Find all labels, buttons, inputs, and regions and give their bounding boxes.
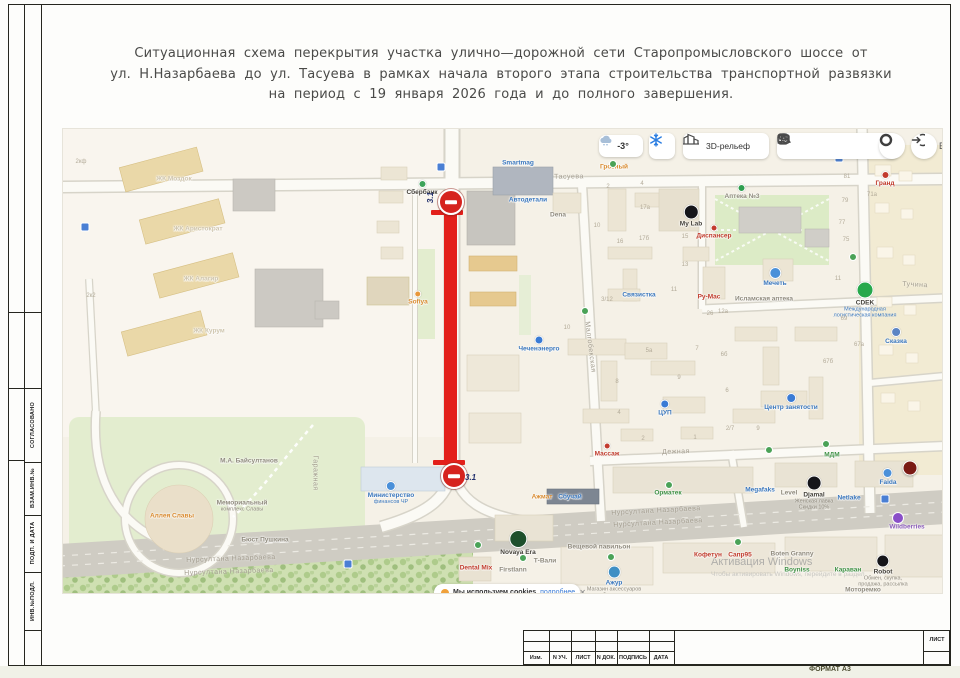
map-poi-label[interactable]: Чеченэнерго [518, 336, 559, 353]
map-poi-label[interactable]: Novaya Era [500, 530, 535, 556]
transit-stop-icon [81, 223, 90, 232]
poi-category-icon [608, 566, 621, 579]
house-number-label: 11 [671, 287, 677, 293]
brand-circle-icon [903, 461, 918, 476]
map-poi-label[interactable]: Sofiya [408, 291, 428, 306]
map-poi-label[interactable]: ЖК Курум [193, 328, 224, 335]
map-poi-label[interactable]: Автодетали [509, 197, 547, 204]
title-block-line [674, 631, 675, 666]
poi-category-icon [414, 291, 421, 298]
closed-road-segment [444, 214, 457, 462]
relief-label: 3D-рельеф [706, 141, 750, 151]
stamp-inv-podl: ИНВ.№ПОДЛ. [30, 581, 36, 621]
stamp-divider [24, 572, 41, 573]
nature-poi-icon [609, 160, 617, 168]
poi-category-icon [418, 180, 426, 188]
map-poi-label[interactable]: Мемориальныйкомплекс Славы [217, 500, 268, 513]
street-name-label: Нурсултана Назарбаева [184, 567, 274, 577]
poi-category-icon [661, 400, 670, 409]
stamp-divider [8, 388, 41, 389]
street-name-label: Дежная [662, 448, 690, 456]
title-block-line [571, 631, 572, 666]
map-poi-label[interactable]: Smartmag [502, 160, 534, 167]
title-block-line [923, 631, 924, 666]
title-block-column-label: N УЧ. [553, 655, 567, 661]
house-number-label: 6 [725, 388, 728, 394]
map-poi-label[interactable]: Массаж [595, 443, 620, 458]
stamp-divider [24, 462, 41, 463]
map-poi-label[interactable]: Ру-Мас [698, 294, 721, 301]
map-poi-label[interactable]: Центр занятости [764, 393, 818, 411]
house-number-label: 2кф [76, 159, 87, 165]
house-number-label: 75 [843, 237, 850, 243]
map-poi-label[interactable]: Netlake [837, 495, 860, 502]
house-number-label: 81 [844, 174, 851, 180]
nature-poi-icon [665, 481, 673, 489]
title-block-column-label: ЛИСТ [575, 655, 590, 661]
drawing-sheet: СОГЛАСОВАНО ВЗАМ.ИНВ.№ ПОДП. И ДАТА ИНВ.… [0, 0, 960, 678]
house-number-label: 9 [756, 426, 759, 432]
title-block-column-label: Изм. [530, 655, 542, 661]
map-poi-label[interactable]: ЖК Алагир [184, 276, 219, 283]
map-labels-layer: СбербанкSmartmagГрозныйАвтодеталиDenaMy … [63, 129, 942, 593]
frame-line [950, 4, 951, 666]
poi-category-icon [684, 205, 699, 220]
poi-category-icon [509, 530, 527, 548]
nature-poi-icon [822, 440, 830, 448]
house-number-label: 17б [639, 236, 649, 242]
house-number-label: 11 [835, 276, 841, 282]
street-name-label: Тасуева [554, 173, 584, 181]
poi-category-icon [881, 171, 889, 179]
frame-line [41, 4, 42, 666]
house-number-label: 17а [640, 205, 650, 211]
transit-stop-icon [437, 163, 446, 172]
house-number-label: 77 [839, 220, 846, 226]
wildberries-icon [892, 512, 904, 524]
nature-poi-icon [734, 538, 742, 546]
house-number-label: 5а [646, 348, 653, 354]
map-poi-label[interactable]: Орматек [654, 490, 681, 497]
house-number-label: 10 [594, 223, 601, 229]
frame-line [24, 4, 25, 666]
map-poi-label[interactable]: АжурМагазин аксессуарови бижутерии [587, 566, 641, 595]
map-poi-label[interactable]: Мечеть [763, 267, 786, 287]
house-number-label: 69 [841, 316, 848, 322]
house-number-label: 2к2 [86, 293, 95, 299]
stamp-soglasovano: СОГЛАСОВАНО [30, 402, 36, 448]
poi-category-icon [883, 468, 893, 478]
map-poi-label[interactable]: Ажмат [532, 494, 553, 501]
map-poi-label[interactable]: Boten Granny [771, 551, 814, 558]
map-poi-label[interactable]: Megafaks [745, 487, 775, 494]
stamp-divider [8, 312, 41, 313]
poi-category-icon [738, 184, 746, 192]
frame-line [8, 4, 9, 666]
stamp-vzam-inv: ВЗАМ.ИНВ.№ [30, 468, 36, 508]
poi-category-icon [877, 555, 890, 568]
house-number-label: 9 [677, 375, 680, 381]
house-number-label: 1 [693, 435, 696, 441]
stamp-podp-data: ПОДП. И ДАТА [30, 522, 36, 565]
transit-stop-icon [344, 560, 353, 569]
title-block-line [524, 651, 674, 652]
title-block-line [617, 631, 618, 666]
house-number-label: 2 [641, 436, 644, 442]
map-poi-label[interactable]: Dena [550, 212, 566, 219]
map-screenshot[interactable]: СбербанкSmartmagГрозныйАвтодеталиDenaMy … [62, 128, 943, 594]
map-poi-label[interactable]: ЖК Моздок [156, 176, 192, 183]
cookie-icon [441, 589, 449, 595]
title-block-column-label: ПОДПИСЬ [619, 655, 647, 661]
cookie-banner: Мы используем cookies подробнее ✕ [434, 584, 580, 594]
house-number-label: 71а [867, 192, 877, 198]
stamp-divider [24, 630, 41, 631]
nature-poi-icon [519, 554, 527, 562]
nature-poi-icon [581, 307, 589, 315]
temperature-value: -3° [617, 141, 629, 151]
street-name-label: Тучина [902, 281, 928, 289]
title-block-column-label: ДАТА [654, 655, 669, 661]
title-line-1: Ситуационная схема перекрытия участка ул… [62, 44, 940, 65]
house-number-label: 15 [682, 234, 689, 240]
map-poi-label[interactable]: Моторемко [845, 587, 881, 594]
poi-category-icon [535, 336, 544, 345]
map-poi-label[interactable]: Сказка [885, 327, 907, 345]
house-number-label: 67б [823, 359, 833, 365]
nature-poi-icon [474, 541, 482, 549]
poi-category-icon [786, 393, 796, 403]
title-line-3: на период с 19 января 2026 года и до пол… [62, 85, 940, 106]
map-poi-label[interactable]: Т-Вали [534, 558, 557, 565]
poi-category-icon [891, 327, 901, 337]
map-poi-label[interactable]: DjamalЖенская лавкаСкидки 10% [795, 476, 834, 511]
house-number-label: 8 [615, 379, 618, 385]
login-button[interactable] [911, 133, 937, 159]
map-poi-label[interactable]: Сапр95 [728, 552, 752, 559]
title-block-line [923, 651, 951, 652]
map-poi-label[interactable]: Бюст Пушкина [241, 537, 288, 544]
map-poi-label[interactable]: Аллея Славы [150, 513, 194, 520]
cookie-text: Мы используем cookies [453, 589, 536, 594]
frame-line [8, 4, 951, 5]
title-block: Изм.N УЧ.ЛИСТN ДОК.ПОДПИСЬДАТА ЛИСТ [523, 630, 950, 665]
map-poi-label[interactable]: Сбучай [558, 494, 582, 501]
map-poi-label[interactable]: Faida [880, 468, 897, 486]
sign-code-bottom: 3.1 [465, 473, 476, 482]
map-poi-label[interactable]: МДМ [824, 452, 839, 459]
house-number-label: 26 [707, 311, 714, 317]
nature-poi-icon [765, 446, 773, 454]
title-block-line [524, 641, 674, 642]
house-number-label: 13 [682, 262, 689, 268]
map-poi-label[interactable]: Диспансер [697, 225, 732, 240]
map-poi-label[interactable]: Министерствофинансов ЧР [368, 481, 414, 505]
poi-category-icon [769, 267, 781, 279]
map-poi-label[interactable]: Исламская аптека [735, 296, 793, 303]
transit-stop-icon [881, 495, 890, 504]
house-number-label: 4 [617, 410, 620, 416]
map-poi-label[interactable]: М.А. Байсултанов [220, 458, 278, 465]
sign-code-top: 3.1 [426, 192, 435, 203]
poi-category-icon [710, 225, 717, 232]
map-poi-label[interactable]: ЖК Аристократ [173, 226, 222, 233]
poi-category-icon [386, 481, 396, 491]
poi-category-icon [604, 443, 611, 450]
house-number-label: 4 [640, 181, 643, 187]
map-poi-label[interactable]: Wildberries [889, 524, 924, 531]
house-number-label: 6б [721, 352, 728, 358]
house-number-label: 12а [718, 309, 728, 315]
weather-widget[interactable]: -3° [599, 135, 643, 157]
street-name-label: Малгобекская [583, 321, 596, 373]
house-number-label: 67а [854, 342, 864, 348]
no-entry-sign-top [438, 189, 464, 215]
stamp-divider [8, 460, 24, 461]
house-number-label: 79 [842, 198, 849, 204]
street-name-label: Нурсултана Назарбаева [611, 505, 701, 517]
title-block-line [549, 631, 550, 666]
map-poi-label[interactable]: Firstlann [499, 567, 526, 574]
drawing-title: Ситуационная схема перекрытия участка ул… [62, 44, 940, 106]
sheet-number-label: ЛИСТ [929, 637, 944, 643]
house-number-label: 7 [695, 346, 698, 352]
nature-poi-icon [849, 253, 857, 261]
3d-relief-button[interactable]: 3D-рельеф [683, 133, 769, 159]
street-name-label: Нурсултана Назарбаева [186, 554, 276, 564]
street-name-label: Нурсултана Назарбаева [613, 517, 703, 529]
map-poi-label[interactable]: Связистка [622, 292, 655, 299]
poi-category-icon [806, 476, 821, 491]
house-number-label: 16 [617, 239, 624, 245]
map-poi-label[interactable]: Кофетун [694, 552, 722, 559]
house-number-label: 2/7 [726, 426, 734, 432]
map-poi-label[interactable]: ЦУП [658, 400, 671, 417]
format-label: ФОРМАТ А3 [800, 666, 860, 673]
map-poi-label[interactable]: Гранд [875, 171, 894, 187]
login-label-clipped: В [939, 141, 943, 151]
map-poi-label[interactable]: Аптека №3 [725, 184, 760, 200]
house-number-label: 10 [564, 325, 571, 331]
map-poi-label[interactable]: Вещевой павильон [568, 544, 631, 551]
house-number-label: 3/12 [601, 297, 613, 303]
no-entry-sign-bottom [441, 463, 467, 489]
title-line-2: ул. Н.Назарбаева до ул. Тасуева в рамках… [62, 65, 940, 86]
poi-category-icon [856, 282, 873, 299]
map-poi-label[interactable]: Dental Mix [460, 565, 493, 572]
title-block-column-label: N ДОК. [597, 655, 616, 661]
house-number-label: 2 [606, 184, 609, 190]
nature-poi-icon [607, 553, 615, 561]
map-poi-label[interactable]: RobotОбмен, скупка,продажа, рассылка [858, 555, 907, 588]
map-poi-label[interactable]: Boyniss [784, 567, 809, 574]
title-block-line [649, 631, 650, 666]
stamp-divider [24, 515, 41, 516]
map-poi-label[interactable]: CDEKМеждународнаялогистическая компания [834, 282, 897, 319]
street-name-label: Гаражная [312, 455, 319, 490]
cookie-details-link[interactable]: подробнее [540, 589, 575, 595]
cookie-close-button[interactable]: ✕ [579, 588, 586, 594]
snow-layer-button[interactable] [649, 133, 675, 159]
compass-button[interactable] [879, 133, 905, 159]
